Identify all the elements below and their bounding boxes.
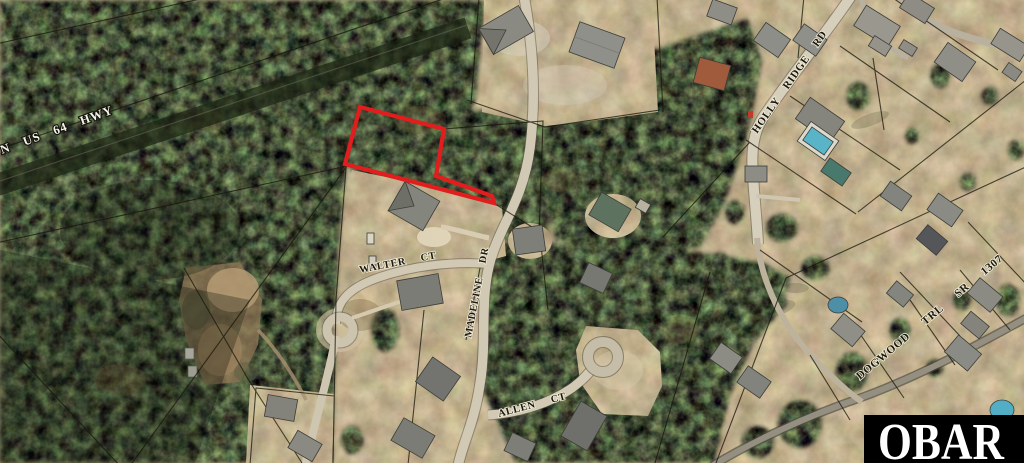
svg-text:OBAR: OBAR	[878, 414, 1005, 463]
